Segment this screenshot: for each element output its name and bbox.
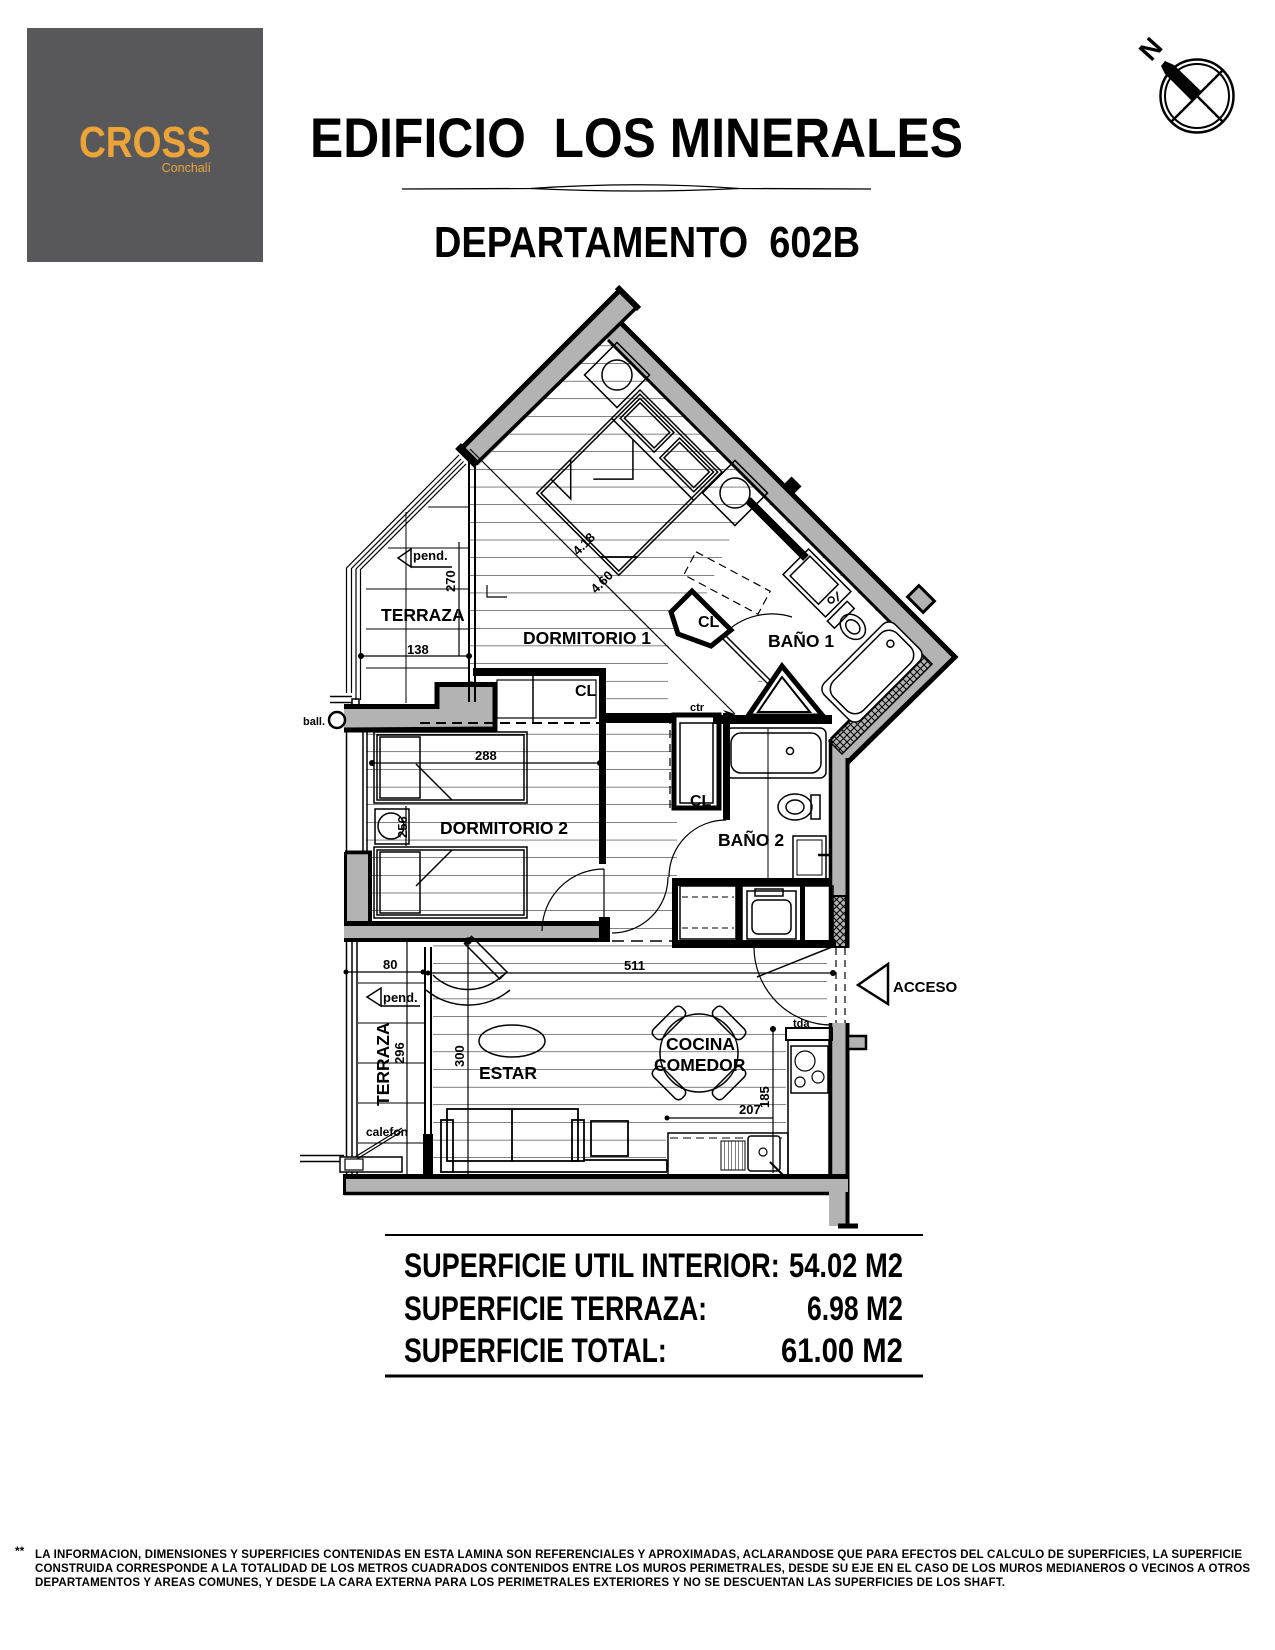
svg-text:**: ** [15,1544,25,1558]
svg-text:ball.: ball. [303,716,325,728]
svg-text:138: 138 [407,642,429,657]
svg-text:CL: CL [575,683,597,700]
svg-text:CL: CL [690,793,712,810]
svg-text:TERRAZA: TERRAZA [373,1022,393,1106]
svg-text:pend.: pend. [383,990,418,1005]
svg-text:BAÑO 1: BAÑO 1 [768,630,834,651]
svg-text:SUPERFICIE TERRAZA:: SUPERFICIE TERRAZA: [404,1290,707,1328]
svg-text:80: 80 [383,957,397,972]
svg-text:288: 288 [475,748,497,763]
svg-text:LA INFORMACION, DIMENSIONES Y: LA INFORMACION, DIMENSIONES Y SUPERFICIE… [35,1549,1242,1561]
svg-text:COMEDOR: COMEDOR [654,1055,746,1075]
svg-text:61.00 M2: 61.00 M2 [781,1331,903,1370]
svg-text:ctr: ctr [690,702,705,714]
svg-text:54.02 M2: 54.02 M2 [789,1246,903,1285]
svg-text:511: 511 [624,958,645,973]
svg-text:COCINA: COCINA [666,1034,735,1054]
svg-text:CL: CL [698,614,720,631]
svg-text:DORMITORIO 2: DORMITORIO 2 [440,818,568,838]
svg-text:calefon: calefon [366,1125,408,1139]
svg-text:TERRAZA: TERRAZA [381,605,465,625]
svg-text:DORMITORIO 1: DORMITORIO 1 [523,628,651,648]
svg-text:185: 185 [757,1086,772,1108]
svg-text:DEPARTAMENTOS Y AREAS COMUNES,: DEPARTAMENTOS Y AREAS COMUNES, Y DESDE L… [35,1577,1005,1589]
svg-text:300: 300 [452,1045,467,1067]
svg-text:SUPERFICIE TOTAL:: SUPERFICIE TOTAL: [404,1332,667,1370]
svg-text:296: 296 [392,1042,407,1064]
svg-text:256: 256 [395,816,410,838]
svg-text:6.98 M2: 6.98 M2 [807,1290,903,1328]
svg-text:CONSTRUIDA CORRESPONDE A LA TO: CONSTRUIDA CORRESPONDE A LA TOTALIDAD DE… [35,1563,1250,1575]
svg-text:270: 270 [443,570,458,592]
svg-text:tda: tda [793,1018,810,1030]
svg-text:BAÑO 2: BAÑO 2 [718,829,784,850]
svg-text:SUPERFICIE UTIL INTERIOR:: SUPERFICIE UTIL INTERIOR: [404,1246,780,1285]
svg-text:ESTAR: ESTAR [479,1063,537,1083]
svg-text:pend.: pend. [413,548,448,563]
svg-text:ACCESO: ACCESO [893,979,958,996]
